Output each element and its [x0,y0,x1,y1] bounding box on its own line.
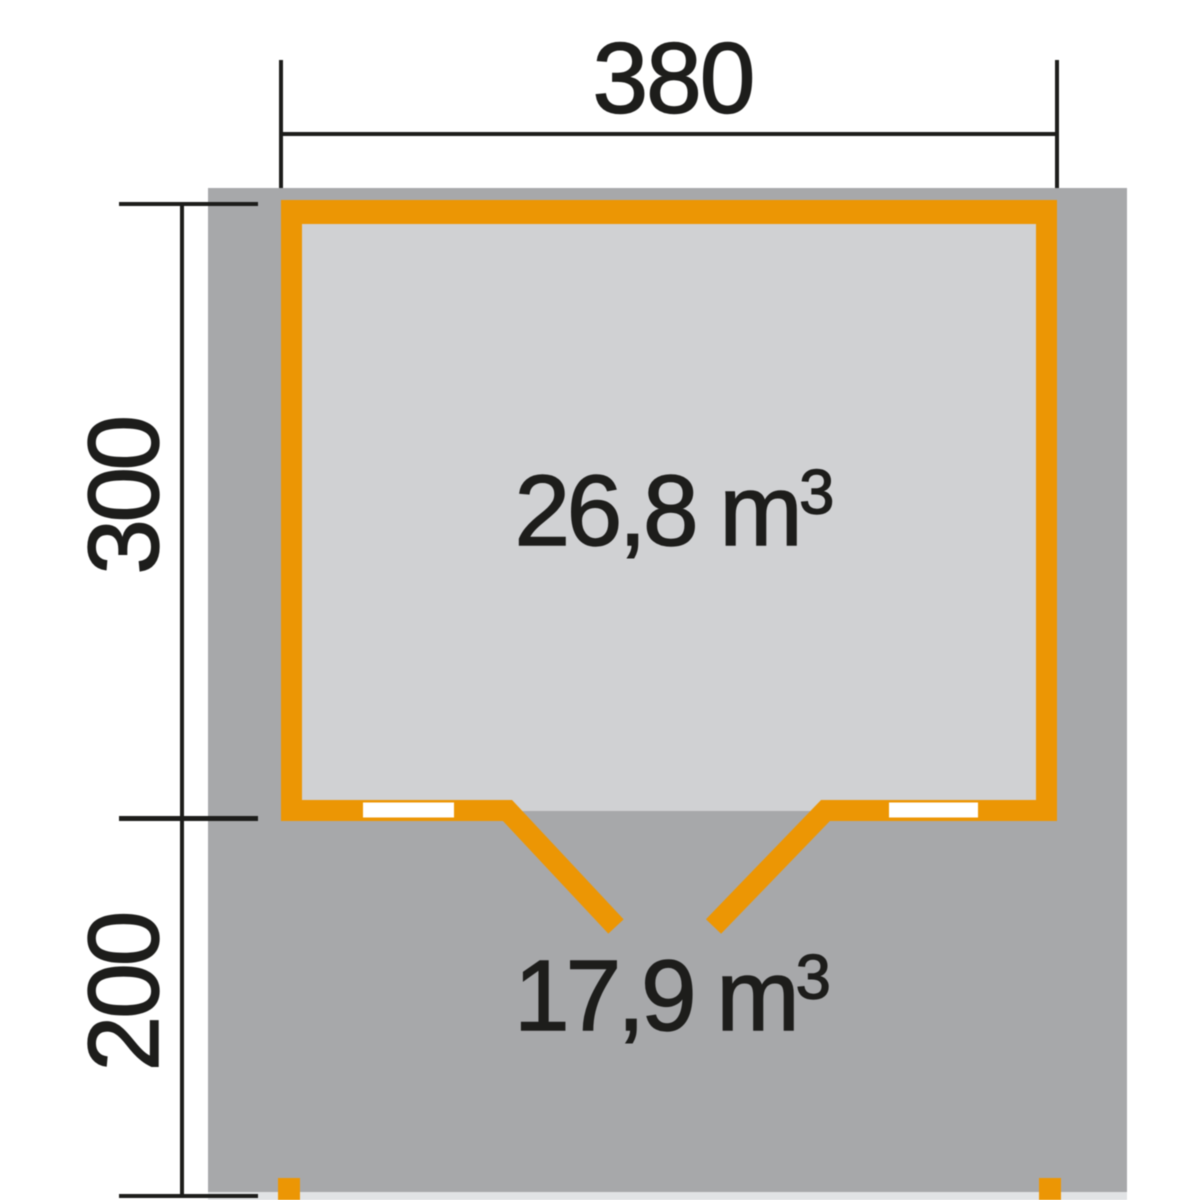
svg-text:300: 300 [68,418,180,574]
svg-text:200: 200 [68,914,180,1072]
svg-text:380: 380 [593,23,754,135]
svg-text:26,8 m3: 26,8 m3 [515,455,833,567]
svg-text:17,9 m3: 17,9 m3 [514,940,829,1052]
